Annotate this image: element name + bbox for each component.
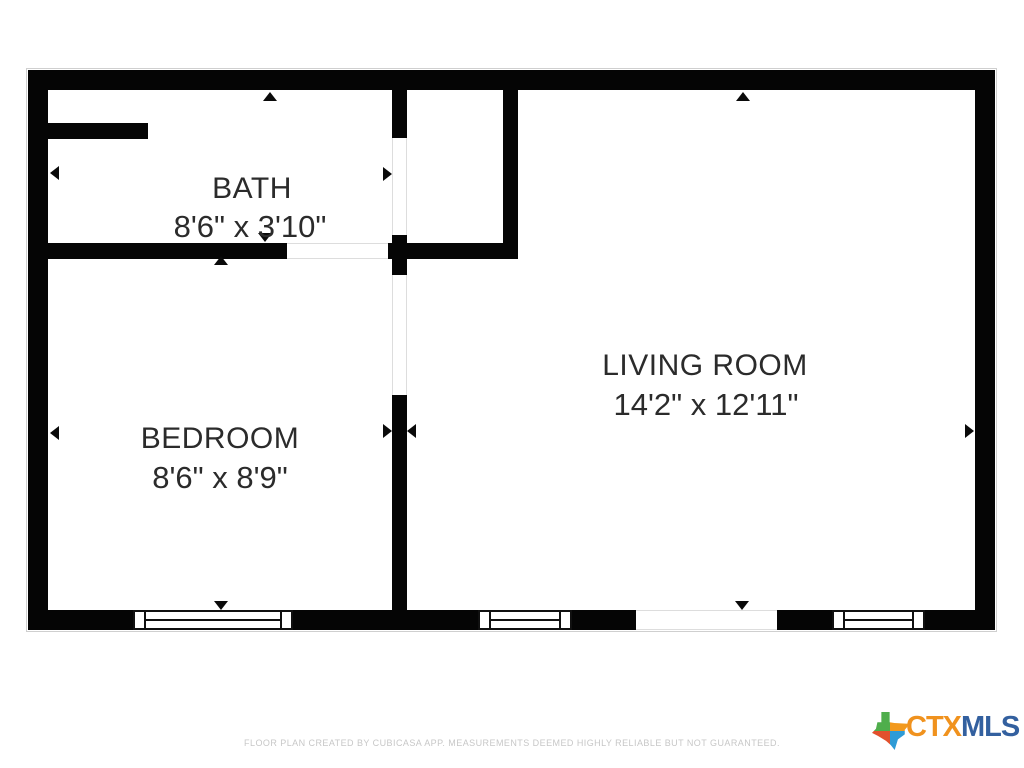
window-frame-line [559, 612, 561, 628]
entry-opening-line [636, 610, 777, 611]
wall-bath-bottom-left [48, 243, 287, 259]
disclaimer-text: FLOOR PLAN CREATED BY CUBICASA APP. MEAS… [244, 738, 780, 748]
wall-closet-bottom [388, 243, 518, 259]
window-bedroom [133, 610, 293, 630]
wall-bottom-seg5 [925, 610, 995, 630]
wall-bath-stub [48, 123, 148, 139]
entry-opening-line [636, 629, 777, 630]
measure-arrow-left-icon [407, 424, 416, 438]
room-dimensions-bath: 8'6" x 3'10" [174, 209, 327, 245]
measure-arrow-up-icon [214, 256, 228, 265]
window-frame-line [280, 612, 282, 628]
bath-door-opening-line [287, 258, 388, 259]
wall-top [28, 70, 995, 90]
closet-door-opening-line [392, 138, 393, 235]
measure-arrow-left-icon [50, 166, 59, 180]
ctxmls-logo: CTXMLS [872, 708, 1012, 752]
logo-text-ctx: CTX [906, 711, 961, 743]
window-living-right [832, 610, 925, 630]
bedroom-door-opening-line [392, 275, 393, 395]
measure-arrow-up-icon [263, 92, 277, 101]
logo-text-mls: MLS [961, 711, 1019, 743]
room-dimensions-bedroom: 8'6" x 8'9" [152, 460, 288, 496]
window-glass-line [845, 619, 912, 621]
room-dimensions-living-room: 14'2" x 12'11" [614, 387, 799, 423]
room-label-bedroom: BEDROOM [141, 422, 300, 456]
measure-arrow-down-icon [214, 601, 228, 610]
window-living-left [478, 610, 572, 630]
measure-arrow-left-icon [50, 426, 59, 440]
wall-divider-lower [392, 395, 407, 630]
measure-arrow-right-icon [383, 424, 392, 438]
measure-arrow-up-icon [736, 92, 750, 101]
wall-divider-top [392, 90, 407, 138]
wall-right [975, 70, 995, 630]
window-glass-line [146, 619, 280, 621]
wall-bottom-seg2 [293, 610, 478, 630]
measure-arrow-right-icon [383, 167, 392, 181]
wall-closet-right [503, 90, 518, 259]
texas-quadrant [872, 712, 890, 731]
room-label-living-room: LIVING ROOM [602, 349, 808, 383]
texas-state-icon [872, 712, 908, 750]
bedroom-door-opening-line [406, 275, 407, 395]
logo-wordmark: CTXMLS [906, 711, 1019, 744]
wall-bottom-seg4 [777, 610, 832, 630]
wall-bottom-seg3 [572, 610, 636, 630]
wall-divider-cross [392, 235, 407, 275]
floor-plan-page: BATH 8'6" x 3'10" BEDROOM 8'6" x 8'9" LI… [0, 0, 1024, 768]
measure-arrow-right-icon [965, 424, 974, 438]
closet-door-opening-line [406, 138, 407, 235]
wall-left [28, 70, 48, 630]
measure-arrow-down-icon [735, 601, 749, 610]
texas-quadrant [872, 731, 890, 750]
window-glass-line [491, 619, 559, 621]
wall-bottom-seg1 [28, 610, 133, 630]
room-label-bath: BATH [212, 172, 292, 206]
window-frame-line [912, 612, 914, 628]
